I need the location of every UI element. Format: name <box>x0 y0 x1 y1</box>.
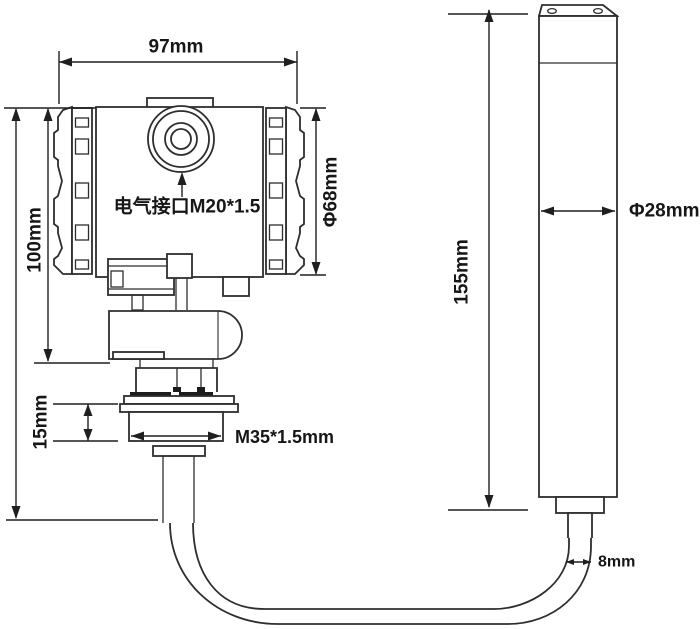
dim-label-8mm: 8mm <box>598 554 635 571</box>
dim-label-phi28mm: Φ28mm <box>629 201 700 222</box>
bracket-leg <box>132 295 143 310</box>
dim-label-97mm: 97mm <box>149 37 204 58</box>
right-end-cap <box>266 107 304 274</box>
electrical-port-label: 电气接口M20*1.5 <box>114 195 261 218</box>
mounting-flange <box>120 404 238 412</box>
side-boss <box>223 277 249 296</box>
cable-inner-edge <box>193 523 569 609</box>
electrical-port-circles <box>148 106 214 172</box>
dim-label-100mm: 100mm <box>25 207 46 273</box>
dimension-drawing: 97mm 100mm Φ68mm 电气接口M20*1.5 <box>0 0 700 629</box>
dim-15mm: 15mm <box>31 395 119 450</box>
probe-cable-gland <box>568 513 592 538</box>
dim-155mm: 155mm <box>448 9 528 510</box>
left-end-cap <box>54 107 92 274</box>
process-connection <box>109 311 242 523</box>
probe-top-face <box>539 5 617 16</box>
thread-spec-label: M35*1.5mm <box>235 427 334 447</box>
dim-label-155mm: 155mm <box>452 239 473 305</box>
probe-body <box>539 16 617 497</box>
upper-washer <box>124 396 234 404</box>
transmitter-housing <box>54 98 304 523</box>
cable <box>170 523 591 624</box>
probe-end-step <box>556 497 604 513</box>
drawing-canvas: 97mm 100mm Φ68mm 电气接口M20*1.5 <box>0 0 700 629</box>
lower-collar <box>153 446 205 456</box>
dim-97mm: 97mm <box>59 37 297 105</box>
outlet-tube <box>163 456 194 523</box>
dim-phi68mm: Φ68mm <box>300 108 342 275</box>
dim-8mm: 8mm <box>566 554 635 571</box>
submersible-probe <box>539 5 617 538</box>
dim-label-15mm: 15mm <box>31 395 52 450</box>
oval-tab <box>113 352 164 359</box>
terminal-block <box>167 254 192 278</box>
dim-label-phi68mm: Φ68mm <box>321 157 342 228</box>
